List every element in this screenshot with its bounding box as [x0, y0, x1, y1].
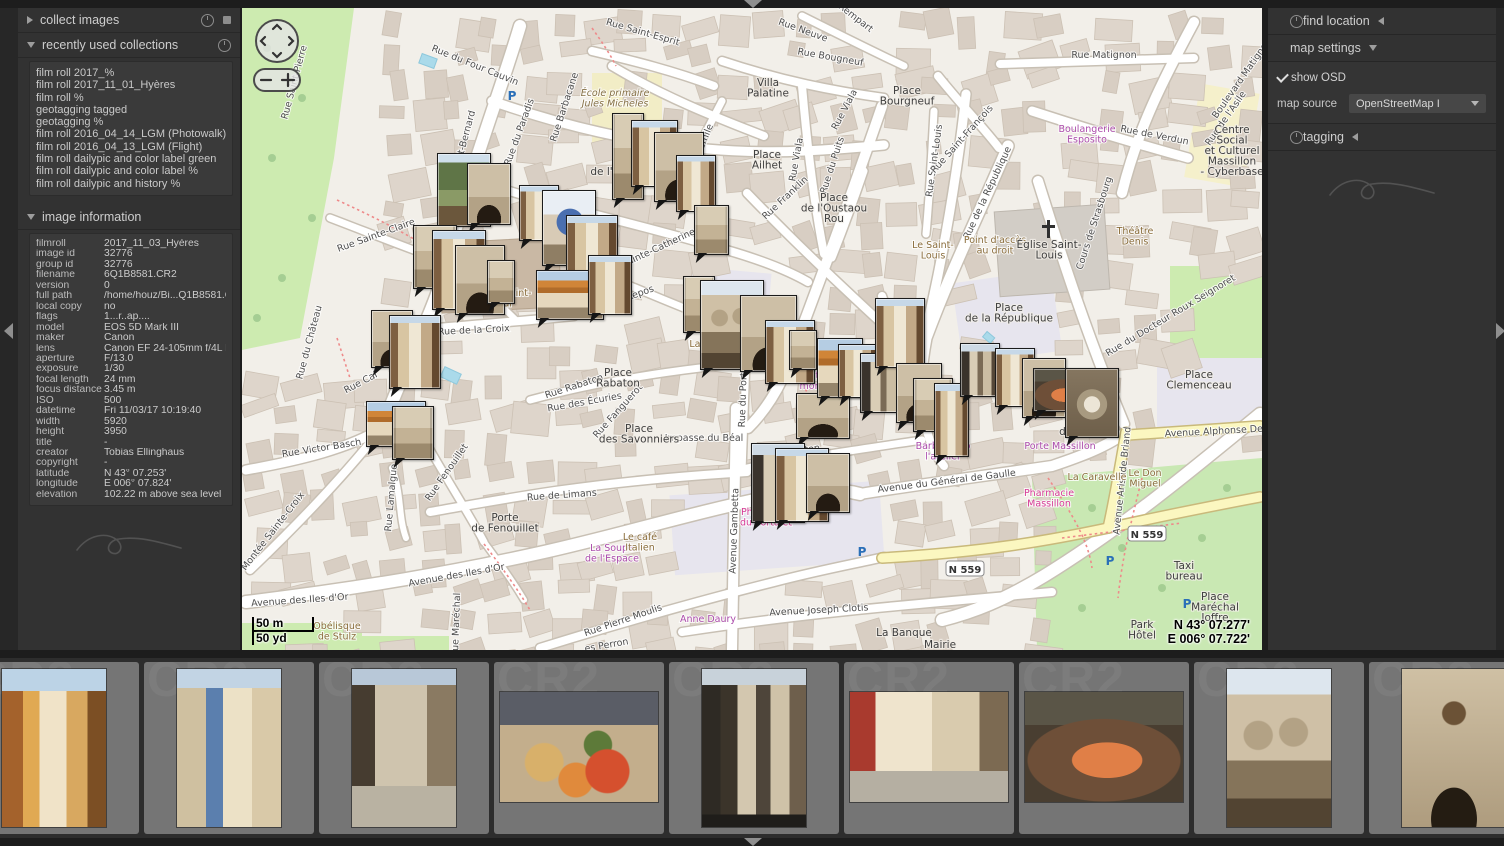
bottom-panel-bar: [0, 838, 1504, 846]
right-sidebar: find location map settings show OSD map …: [1268, 8, 1496, 650]
collection-item[interactable]: film roll 2016_04_14_LGM (Photowalk): [36, 128, 226, 140]
info-value: 5920: [104, 417, 127, 427]
info-label: filmroll: [36, 239, 104, 249]
photo-marker[interactable]: [487, 260, 515, 304]
thumbnail-photo: [1402, 669, 1504, 827]
info-label: group id: [36, 260, 104, 270]
collection-item[interactable]: geotagging %: [36, 116, 226, 128]
reset-icon[interactable]: [218, 39, 231, 52]
info-row: modelEOS 5D Mark III: [36, 323, 226, 333]
photo-marker-layer: [242, 8, 1262, 650]
info-row: focus distance3.45 m: [36, 385, 226, 395]
info-label: lens: [36, 344, 104, 354]
info-label: creator: [36, 448, 104, 458]
collection-item[interactable]: film roll 2017_%: [36, 67, 226, 79]
thumbnail-photo: [500, 692, 658, 802]
find-location-header[interactable]: find location: [1268, 8, 1496, 35]
show-osd-label: show OSD: [1291, 72, 1346, 84]
thumbnail-photo: [850, 692, 1008, 802]
filmstrip-thumbnail[interactable]: CR2: [1019, 662, 1189, 834]
info-value: F/13.0: [104, 354, 133, 364]
presets-icon[interactable]: [223, 16, 231, 24]
panel-flourish-ornament: [18, 528, 240, 562]
map-zoom-control[interactable]: [253, 68, 301, 97]
panel-flourish-ornament: [1268, 173, 1496, 207]
photo-marker[interactable]: [960, 343, 1000, 397]
info-value: no: [104, 302, 115, 312]
collection-item[interactable]: film roll dailypic and color label green: [36, 153, 226, 165]
info-label: title: [36, 438, 104, 448]
collection-item[interactable]: film roll dailypic and color label %: [36, 165, 226, 177]
map-source-dropdown[interactable]: OpenStreetMap I: [1349, 94, 1486, 113]
photo-marker[interactable]: [389, 315, 441, 389]
filmstrip-thumbnail[interactable]: CR2: [669, 662, 839, 834]
recent-collections-header[interactable]: recently used collections: [18, 33, 240, 58]
info-value: 6Q1B8581.CR2: [104, 270, 177, 280]
info-row: lensCanon EF 24-105mm f/4L IS: [36, 344, 226, 354]
info-label: datetime: [36, 406, 104, 416]
info-value: 32776: [104, 260, 133, 270]
filmstrip-thumbnail[interactable]: CR2: [144, 662, 314, 834]
info-label: maker: [36, 333, 104, 343]
left-panel-collapse-icon[interactable]: [4, 323, 13, 339]
info-row: local copyno: [36, 302, 226, 312]
info-value: /home/houz/Bi...Q1B8581.CR2: [104, 291, 226, 301]
collect-images-header[interactable]: collect images: [18, 8, 240, 33]
collection-item[interactable]: geotagging tagged: [36, 104, 226, 116]
info-label: copyright: [36, 458, 104, 468]
thumbnail-photo: [177, 669, 281, 827]
recent-collections-list: film roll 2017_%film roll 2017_11_01_Hyè…: [29, 61, 233, 196]
info-row: creatorTobias Ellinghaus: [36, 448, 226, 458]
filmstrip-thumbnail[interactable]: CR2: [0, 662, 139, 834]
info-label: latitude: [36, 469, 104, 479]
coordinate-latitude: N 43° 07.277': [1168, 619, 1250, 633]
info-label: filename: [36, 270, 104, 280]
thumbnail-photo: [1227, 669, 1331, 827]
collection-item[interactable]: film roll dailypic and history %: [36, 178, 226, 190]
photo-marker[interactable]: [676, 155, 716, 212]
info-value: 1/30: [104, 364, 124, 374]
info-value: E 006° 07.824': [104, 479, 171, 489]
info-value: 500: [104, 396, 121, 406]
info-row: filmroll2017_11_03_Hyères: [36, 239, 226, 249]
left-panel-edge: [0, 8, 18, 650]
photo-marker[interactable]: [392, 406, 434, 460]
collect-images-title: collect images: [40, 13, 119, 27]
scale-metric: 50 m: [252, 617, 314, 632]
info-row: group id32776: [36, 260, 226, 270]
map-source-value: OpenStreetMap I: [1356, 98, 1471, 110]
right-panel-collapse-icon[interactable]: [1496, 323, 1504, 339]
collection-item[interactable]: film roll 2016_04_13_LGM (Flight): [36, 141, 226, 153]
info-row: height3950: [36, 427, 226, 437]
info-row: title-: [36, 438, 226, 448]
info-value: EOS 5D Mark III: [104, 323, 179, 333]
photo-marker[interactable]: [1065, 368, 1119, 438]
thumbnail-photo: [352, 669, 456, 827]
map-source-label: map source: [1277, 98, 1349, 110]
photo-marker[interactable]: [789, 330, 817, 370]
info-row: focal length24 mm: [36, 375, 226, 385]
info-label: version: [36, 281, 104, 291]
coordinate-longitude: E 006° 07.722': [1168, 633, 1250, 647]
info-value: 3.45 m: [104, 385, 135, 395]
photo-marker[interactable]: [588, 255, 632, 315]
info-value: 1...r..ap....: [104, 312, 150, 322]
module-collect-images: collect images: [18, 8, 240, 33]
info-value: 102.22 m above sea level: [104, 490, 221, 500]
info-row: latitudeN 43° 07.253': [36, 469, 226, 479]
darktable-map-view: collect images recently used collections…: [0, 0, 1504, 846]
map-settings-title: map settings: [1290, 41, 1361, 55]
info-label: image id: [36, 249, 104, 259]
info-value: 2017_11_03_Hyères: [104, 239, 199, 249]
module-image-information: image information filmroll2017_11_03_Hyè…: [18, 205, 240, 506]
tagging-title: tagging: [1303, 130, 1344, 144]
info-row: filename6Q1B8581.CR2: [36, 270, 226, 280]
photo-marker[interactable]: [806, 453, 850, 513]
info-row: apertureF/13.0: [36, 354, 226, 364]
info-value: N 43° 07.253': [104, 469, 166, 479]
info-label: flags: [36, 312, 104, 322]
info-label: local copy: [36, 302, 104, 312]
info-value: -: [104, 458, 107, 468]
filmstrip: CR2CR2CR2CR2CR2CR2CR2CR2CR2: [0, 658, 1504, 838]
info-value: Fri 11/03/17 10:19:40: [104, 406, 201, 416]
info-row: exposure1/30: [36, 364, 226, 374]
info-row: copyright-: [36, 458, 226, 468]
map-settings-body: show OSD map source OpenStreetMap I: [1268, 62, 1496, 124]
left-sidebar: collect images recently used collections…: [18, 8, 240, 650]
filmstrip-thumbnail[interactable]: CR2: [844, 662, 1014, 834]
recent-collections-title: recently used collections: [42, 38, 178, 52]
info-value: 0: [104, 281, 110, 291]
photo-marker[interactable]: [694, 205, 729, 255]
info-row: width5920: [36, 417, 226, 427]
top-panel-bar: [0, 0, 1504, 8]
info-row: version0: [36, 281, 226, 291]
info-value: Canon: [104, 333, 134, 343]
info-row: datetimeFri 11/03/17 10:19:40: [36, 406, 226, 416]
map-source-row: map source OpenStreetMap I: [1277, 94, 1486, 113]
expander-down-icon: [27, 42, 35, 48]
collection-item[interactable]: film roll %: [36, 92, 226, 104]
info-value: -: [104, 438, 107, 448]
photo-marker[interactable]: [875, 298, 925, 368]
info-row: flags1...r..ap....: [36, 312, 226, 322]
info-value: 24 mm: [104, 375, 135, 385]
chevron-down-icon: [1471, 101, 1479, 106]
info-label: focal length: [36, 375, 104, 385]
collection-item[interactable]: film roll 2017_11_01_Hyères: [36, 79, 226, 91]
info-row: elevation102.22 m above sea level: [36, 490, 226, 500]
thumbnail-photo: [1025, 692, 1183, 802]
reset-icon[interactable]: [201, 14, 214, 27]
image-information-table: filmroll2017_11_03_Hyèresimage id32776gr…: [29, 233, 233, 506]
expander-right-icon: [27, 16, 33, 24]
map-scale-bar: 50 m 50 yd: [252, 617, 314, 645]
find-location-title: find location: [1303, 14, 1370, 28]
info-label: width: [36, 417, 104, 427]
expander-left-icon: [1378, 17, 1384, 25]
filmstrip-collapse-icon[interactable]: [744, 838, 762, 846]
filmstrip-thumbnail[interactable]: CR2: [494, 662, 664, 834]
map-pan-control[interactable]: [254, 18, 300, 69]
info-value: Tobias Ellinghaus: [104, 448, 184, 458]
show-osd-checkbox[interactable]: show OSD: [1277, 70, 1486, 86]
scale-imperial: 50 yd: [252, 632, 314, 645]
info-label: aperture: [36, 354, 104, 364]
thumbnail-photo: [2, 669, 106, 827]
map-settings-header[interactable]: map settings: [1268, 35, 1496, 62]
image-information-header[interactable]: image information: [18, 205, 240, 230]
top-panel-collapse-icon[interactable]: [744, 0, 762, 8]
info-value: 32776: [104, 249, 133, 259]
info-label: full path: [36, 291, 104, 301]
info-label: focus distance: [36, 385, 104, 395]
info-label: ISO: [36, 396, 104, 406]
checkmark-icon: [1276, 70, 1289, 83]
filmstrip-thumbnail[interactable]: CR2: [1369, 662, 1504, 834]
info-label: model: [36, 323, 104, 333]
filmstrip-thumbnail[interactable]: CR2: [319, 662, 489, 834]
info-label: longitude: [36, 479, 104, 489]
filmstrip-thumbnail[interactable]: CR2: [1194, 662, 1364, 834]
tagging-header[interactable]: tagging: [1268, 124, 1496, 151]
expander-down-icon: [1369, 45, 1377, 51]
info-row: makerCanon: [36, 333, 226, 343]
info-row: longitudeE 006° 07.824': [36, 479, 226, 489]
expander-left-icon: [1352, 133, 1358, 141]
map-cursor-coordinates: N 43° 07.277' E 006° 07.722': [1168, 619, 1250, 646]
module-recent-collections: recently used collections film roll 2017…: [18, 33, 240, 196]
expander-down-icon: [27, 214, 35, 220]
photo-marker[interactable]: [467, 163, 511, 225]
reset-icon[interactable]: [1290, 15, 1303, 28]
info-row: full path/home/houz/Bi...Q1B8581.CR2: [36, 291, 226, 301]
image-information-title: image information: [42, 210, 141, 224]
info-label: exposure: [36, 364, 104, 374]
map-view[interactable]: N 559N 559 Rue Saint-EspritRue NeuveRemp…: [242, 8, 1262, 650]
thumbnail-photo: [702, 669, 806, 827]
info-value: 3950: [104, 427, 127, 437]
info-label: elevation: [36, 490, 104, 500]
right-panel-edge: [1496, 8, 1504, 650]
info-row: image id32776: [36, 249, 226, 259]
info-row: ISO500: [36, 396, 226, 406]
info-label: height: [36, 427, 104, 437]
reset-icon[interactable]: [1290, 131, 1303, 144]
info-value: Canon EF 24-105mm f/4L IS: [104, 344, 226, 354]
